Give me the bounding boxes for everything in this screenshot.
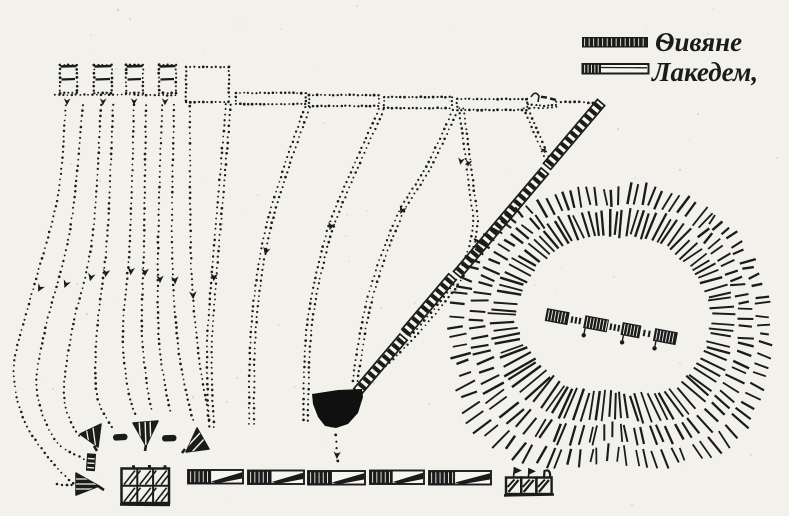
svg-text:Ѳивяне: Ѳивяне <box>655 27 742 57</box>
svg-text:Лакедем,: Лакедем, <box>651 57 758 87</box>
